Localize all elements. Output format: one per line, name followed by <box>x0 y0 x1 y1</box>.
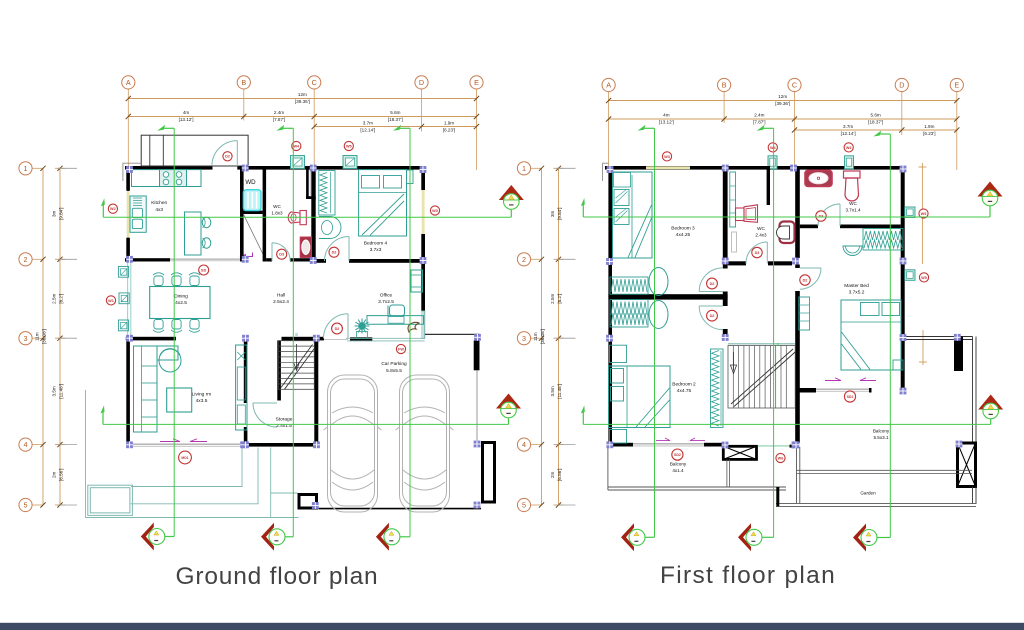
svg-text:2.4x3: 2.4x3 <box>755 233 767 238</box>
svg-text:MD1: MD1 <box>181 456 188 460</box>
svg-text:Balcony: Balcony <box>670 462 687 467</box>
svg-text:3: 3 <box>24 334 28 343</box>
svg-text:W5: W5 <box>346 144 352 148</box>
svg-text:2.5m: 2.5m <box>52 293 57 303</box>
svg-text:5.8x5.5: 5.8x5.5 <box>386 368 402 374</box>
svg-text:4: 4 <box>24 440 28 449</box>
svg-text:[11.48']: [11.48'] <box>557 384 562 399</box>
svg-text:11m: 11m <box>533 332 538 341</box>
svg-text:4x4.25: 4x4.25 <box>676 232 691 238</box>
svg-text:3.7x1.4: 3.7x1.4 <box>845 208 861 213</box>
svg-text:SD2: SD2 <box>674 453 681 457</box>
svg-text:W1: W1 <box>108 299 114 303</box>
svg-text:W4: W4 <box>846 146 853 150</box>
svg-text:4: 4 <box>522 440 526 449</box>
svg-text:W5: W5 <box>921 276 927 280</box>
svg-text:SD2: SD2 <box>847 395 854 399</box>
svg-text:[9.84']: [9.84'] <box>58 208 63 220</box>
svg-text:1.9m: 1.9m <box>444 121 454 126</box>
svg-text:FW: FW <box>398 347 404 351</box>
svg-text:D2: D2 <box>332 251 337 255</box>
svg-text:Storage: Storage <box>276 417 293 423</box>
svg-text:[18.37']: [18.37'] <box>868 119 883 124</box>
svg-text:Ground floor plan: Ground floor plan <box>176 563 379 590</box>
svg-text:C: C <box>312 78 317 87</box>
svg-text:Bedroom 2: Bedroom 2 <box>672 382 696 388</box>
svg-text:W2: W2 <box>110 207 116 211</box>
svg-text:Bedroom 4: Bedroom 4 <box>364 241 388 247</box>
svg-text:A: A <box>606 81 611 90</box>
svg-text:W5: W5 <box>921 212 927 216</box>
svg-text:[6.56']: [6.56'] <box>557 469 562 481</box>
svg-text:WC: WC <box>849 201 857 206</box>
svg-text:W4: W4 <box>293 144 300 148</box>
svg-text:[11.48']: [11.48'] <box>58 384 63 399</box>
svg-text:4x3: 4x3 <box>155 207 163 213</box>
svg-text:W3: W3 <box>432 209 438 213</box>
svg-text:3.7x3: 3.7x3 <box>370 247 382 253</box>
svg-text:3m: 3m <box>52 210 57 217</box>
svg-text:5.6m: 5.6m <box>871 113 881 118</box>
svg-text:[6.23']: [6.23'] <box>923 131 935 136</box>
svg-text:[13.12']: [13.12'] <box>659 119 674 124</box>
svg-text:[6.56']: [6.56'] <box>58 469 63 481</box>
svg-text:3.7m: 3.7m <box>363 121 373 126</box>
svg-text:S: S <box>295 332 298 337</box>
svg-text:Master Bed: Master Bed <box>844 283 869 289</box>
svg-text:W3: W3 <box>664 155 670 159</box>
svg-text:D2: D2 <box>710 314 715 318</box>
svg-text:4x3.5: 4x3.5 <box>196 398 208 404</box>
svg-text:2m: 2m <box>52 471 57 478</box>
svg-text:4m: 4m <box>183 110 190 115</box>
svg-text:3.5m: 3.5m <box>550 386 555 396</box>
svg-text:12m: 12m <box>778 94 787 99</box>
svg-text:D2: D2 <box>335 327 340 331</box>
svg-text:[36.08']: [36.08'] <box>540 329 545 344</box>
svg-text:First floor plan: First floor plan <box>660 562 836 589</box>
svg-text:12m: 12m <box>298 92 307 97</box>
svg-text:3.7m: 3.7m <box>843 124 853 129</box>
svg-text:Bedroom 3: Bedroom 3 <box>671 226 695 232</box>
svg-text:C: C <box>792 81 797 90</box>
svg-text:B: B <box>241 78 246 87</box>
svg-text:[36.08']: [36.08'] <box>41 329 46 344</box>
svg-text:[7.87']: [7.87'] <box>753 119 765 124</box>
svg-text:Dining: Dining <box>174 294 188 300</box>
svg-text:Garden: Garden <box>860 491 876 496</box>
svg-text:Office: Office <box>380 293 393 299</box>
svg-text:4m: 4m <box>663 113 670 118</box>
svg-text:5.5x3.1: 5.5x3.1 <box>873 435 889 440</box>
svg-text:3.7x5.2: 3.7x5.2 <box>849 290 865 296</box>
svg-text:[39.36']: [39.36'] <box>775 101 790 106</box>
svg-text:Living rm: Living rm <box>192 392 211 398</box>
svg-text:D2: D2 <box>710 282 715 286</box>
svg-text:3m: 3m <box>550 210 555 217</box>
svg-text:[9.84']: [9.84'] <box>557 208 562 220</box>
svg-text:2.4m: 2.4m <box>274 110 284 115</box>
svg-text:[13.12']: [13.12'] <box>179 117 194 122</box>
svg-text:2m: 2m <box>550 471 555 478</box>
svg-text:D3: D3 <box>755 251 760 255</box>
svg-text:Balcony: Balcony <box>873 429 890 434</box>
svg-text:5.6m: 5.6m <box>390 110 400 115</box>
svg-text:2.5x2.4: 2.5x2.4 <box>273 299 289 305</box>
svg-text:Kitchen: Kitchen <box>151 200 167 206</box>
svg-text:[8.2']: [8.2'] <box>557 294 562 304</box>
svg-text:WD: WD <box>245 179 256 186</box>
svg-text:[12.14']: [12.14'] <box>841 131 856 136</box>
svg-text:D3: D3 <box>819 214 824 218</box>
svg-text:A: A <box>126 78 131 87</box>
svg-text:D: D <box>419 78 424 87</box>
svg-text:[8.2']: [8.2'] <box>58 294 63 304</box>
svg-text:E: E <box>954 81 959 90</box>
svg-text:[12.14']: [12.14'] <box>360 127 375 132</box>
svg-text:WC: WC <box>273 204 281 209</box>
svg-text:S: S <box>776 342 779 347</box>
svg-text:4x4.75: 4x4.75 <box>677 388 692 394</box>
svg-text:1: 1 <box>24 164 28 173</box>
svg-text:B: B <box>722 81 727 90</box>
svg-text:Car Parking: Car Parking <box>381 361 407 367</box>
svg-text:W6: W6 <box>778 456 784 460</box>
svg-text:[6.23']: [6.23'] <box>443 127 455 132</box>
svg-text:[7.87']: [7.87'] <box>273 117 285 122</box>
svg-text:4x1.4: 4x1.4 <box>672 468 684 473</box>
svg-text:1.9m: 1.9m <box>924 124 934 129</box>
svg-text:2.4m: 2.4m <box>754 113 764 118</box>
svg-text:2: 2 <box>522 255 526 264</box>
svg-text:Hall: Hall <box>277 293 285 299</box>
svg-text:D3: D3 <box>279 253 284 257</box>
svg-text:D2: D2 <box>803 278 808 282</box>
svg-text:[18.37']: [18.37'] <box>388 117 403 122</box>
svg-text:E: E <box>474 78 479 87</box>
svg-text:5: 5 <box>522 501 526 510</box>
svg-text:D: D <box>899 81 904 90</box>
svg-text:2.5m: 2.5m <box>550 293 555 303</box>
svg-text:3: 3 <box>522 334 526 343</box>
svg-text:5: 5 <box>24 501 28 510</box>
svg-text:D2: D2 <box>225 155 230 159</box>
svg-text:2: 2 <box>24 255 28 264</box>
svg-text:SD: SD <box>201 268 207 272</box>
svg-text:1.8x3: 1.8x3 <box>271 211 283 216</box>
svg-text:3.5m: 3.5m <box>52 386 57 396</box>
svg-text:1: 1 <box>522 164 526 173</box>
svg-text:WC: WC <box>757 226 765 231</box>
svg-text:3.7x2.5: 3.7x2.5 <box>378 299 394 305</box>
svg-text:11m: 11m <box>35 332 40 341</box>
svg-text:4x2.5: 4x2.5 <box>175 300 187 306</box>
svg-text:[39.36']: [39.36'] <box>295 99 310 104</box>
